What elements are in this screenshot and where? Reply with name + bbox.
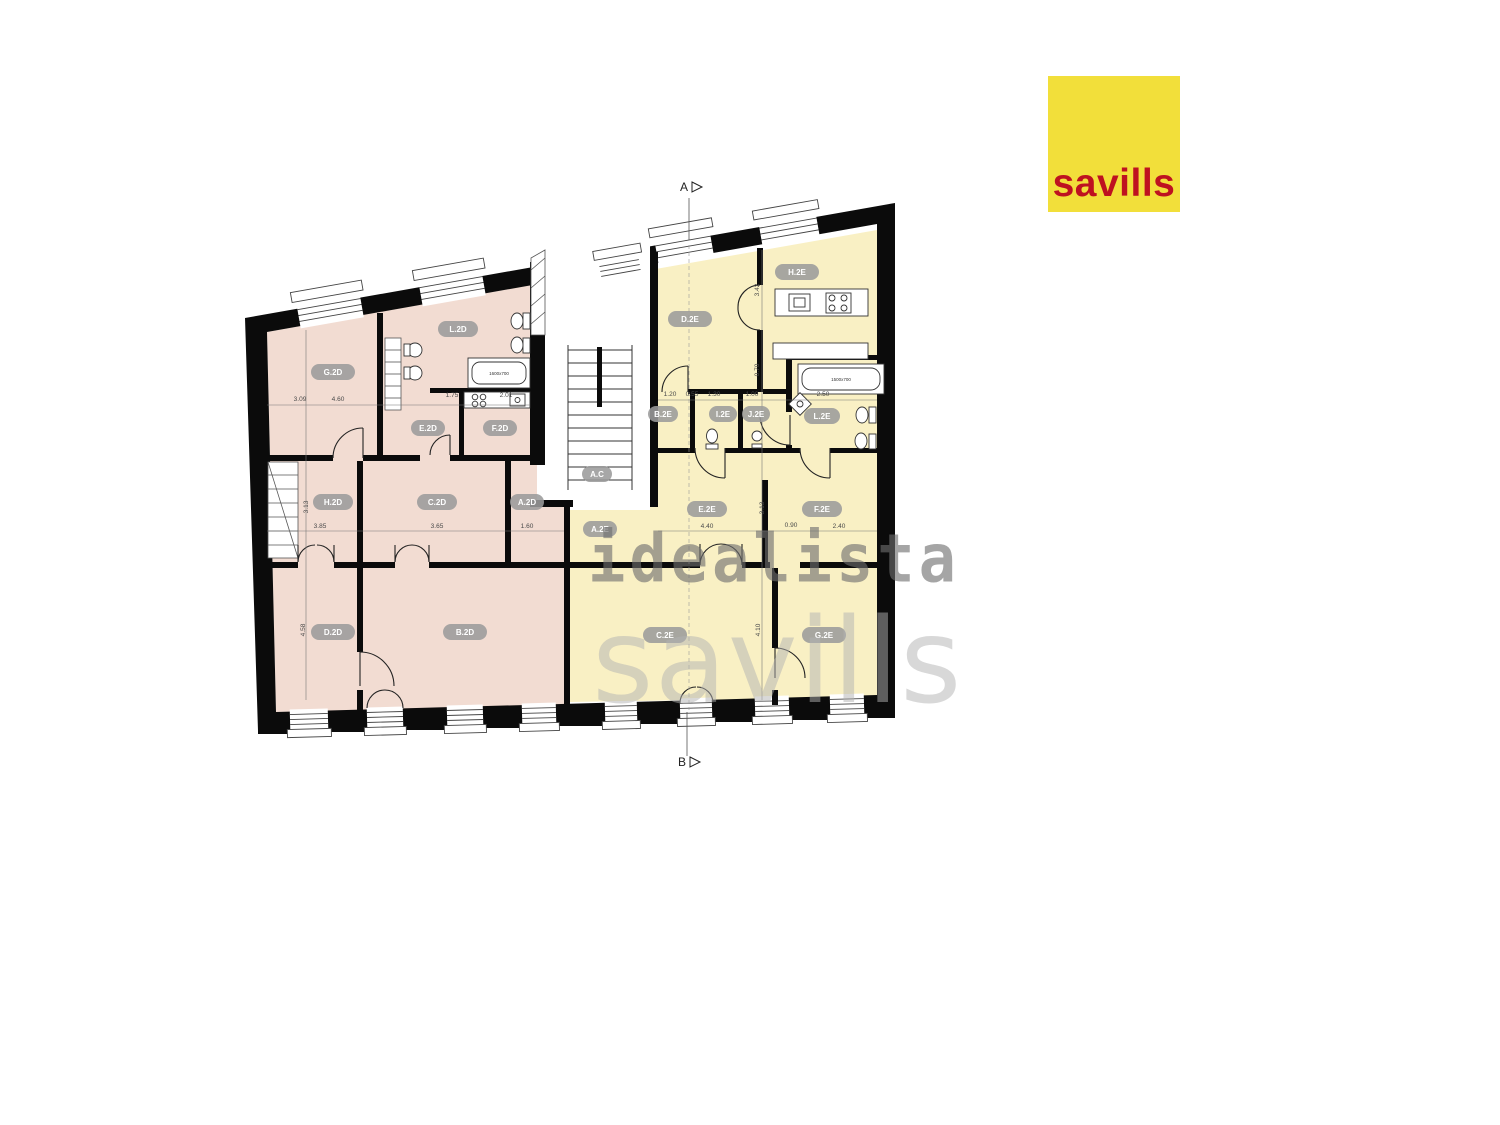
dimension-text: 4.58 [300,623,307,636]
svg-text:G.2D: G.2D [324,368,343,377]
room-label: D.2E [668,311,712,327]
toilet-icon [707,429,718,443]
dimension-text: 0.55 [686,391,699,398]
svg-text:H.2D: H.2D [324,498,342,507]
floorplan-drawing: AB G.2DL.2DE.2DF.2DH.2DC.2DA.2DD.2DB.2DD… [0,0,1500,1125]
svg-text:L.2E: L.2E [814,412,832,421]
fixture-label: 1600x700 [489,371,509,376]
svg-text:D.2D: D.2D [324,628,342,637]
floorplan-page: AB G.2DL.2DE.2DF.2DH.2DC.2DA.2DD.2DB.2DD… [0,0,1500,1125]
kitchen-island [773,343,868,359]
bidet-icon [855,433,867,449]
room-label: F.2D [483,420,517,436]
svg-text:F.2D: F.2D [492,424,509,433]
dimension-text: 1.30 [708,391,721,398]
room-label: E.2D [411,420,445,436]
dimension-text: 2.01 [500,392,513,399]
svg-text:A: A [680,180,688,194]
svg-text:E.2D: E.2D [419,424,437,433]
bidet-icon [511,337,523,353]
dimension-text: 3.65 [431,523,444,530]
svg-text:E.2E: E.2E [698,505,716,514]
dimension-text: 3.09 [294,396,307,403]
hob-icon [472,394,478,400]
room-label: A.2D [510,494,544,510]
room-label: B.2E [648,406,678,422]
room-label: B.2D [443,624,487,640]
room-label: C.2E [643,627,687,643]
svg-text:A.2D: A.2D [518,498,536,507]
svg-text:C.2D: C.2D [428,498,446,507]
window-top-3 [648,218,717,266]
svg-text:B: B [678,755,686,769]
room-label: D.2D [311,624,355,640]
dimension-text: 1.20 [664,391,677,398]
svg-text:A.2E: A.2E [591,525,609,534]
dimension-text: 2.50 [817,391,830,398]
savills-logo: savills [1048,76,1180,212]
svg-text:C.2E: C.2E [656,631,674,640]
room-label: L.2E [804,408,840,424]
dimension-text: 0.70 [754,363,761,376]
dimension-text: 4.60 [332,396,345,403]
basin-icon [752,431,762,441]
dimension-text: 0.90 [785,522,798,529]
dimension-text: 2.40 [833,523,846,530]
dimension-text: 4.10 [755,623,762,636]
room-label: L.2D [438,321,478,337]
svg-text:D.2E: D.2E [681,315,699,324]
room-label: G.2D [311,364,355,380]
svg-text:F.2E: F.2E [814,505,831,514]
toilet-icon [511,313,523,329]
svg-text:J.2E: J.2E [748,410,765,419]
svg-text:L.2D: L.2D [449,325,467,334]
dimension-text: 1.75 [446,392,459,399]
room-label: H.2D [313,494,353,510]
svg-text:G.2E: G.2E [815,631,834,640]
room-label: G.2E [802,627,846,643]
svg-text:I.2E: I.2E [716,410,731,419]
dimension-text: 1.60 [521,523,534,530]
svg-text:B.2D: B.2D [456,628,474,637]
toilet-icon [856,407,868,423]
room-label: F.2E [802,501,842,517]
room-label: A.2E [583,521,617,537]
dimension-text: 4.40 [701,523,714,530]
room-label: J.2E [742,406,770,422]
window-top-4 [752,200,823,248]
dimension-text: 3.85 [314,523,327,530]
savills-logo-text: savills [1053,164,1176,212]
dimension-text: 3.13 [303,500,310,513]
svg-text:B.2E: B.2E [654,410,672,419]
dimension-text: 3.42 [754,283,761,296]
room-label: A.C [582,466,612,482]
fixture-label: 1500x700 [831,377,851,382]
room-label: C.2D [417,494,457,510]
svg-text:H.2E: H.2E [788,268,806,277]
svg-text:A.C: A.C [590,470,604,479]
dimension-text: 1.00 [746,391,759,398]
room-label: I.2E [709,406,737,422]
dimension-text: 3.13 [759,501,766,514]
room-label: H.2E [775,264,819,280]
room-label: E.2E [687,501,727,517]
